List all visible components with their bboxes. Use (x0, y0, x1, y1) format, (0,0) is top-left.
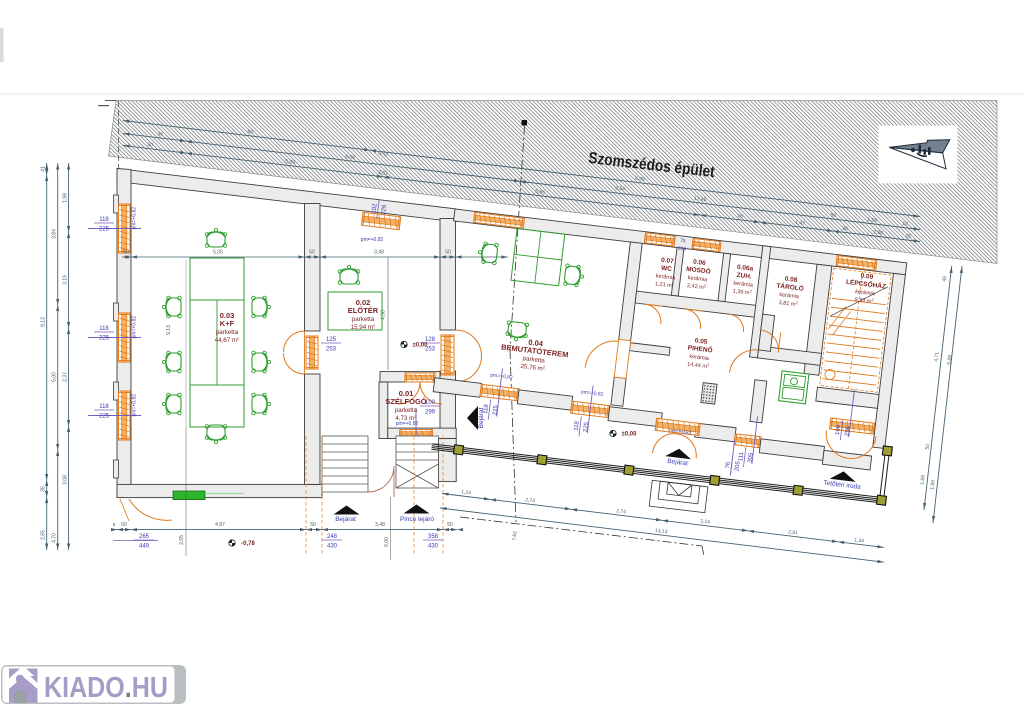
svg-text:parketta: parketta (216, 329, 239, 336)
svg-text:1,68: 1,68 (929, 479, 936, 490)
svg-text:248: 248 (327, 534, 338, 540)
svg-text:4,58: 4,58 (381, 310, 387, 320)
svg-text:5,69: 5,69 (946, 354, 953, 365)
svg-text:3,84: 3,84 (52, 229, 58, 239)
svg-text:4,73 m2: 4,73 m2 (395, 414, 417, 422)
svg-text:2,74: 2,74 (525, 497, 536, 504)
svg-text:pm=+0,82: pm=+0,82 (132, 316, 138, 339)
svg-text:299: 299 (425, 410, 436, 416)
svg-text:3,43: 3,43 (378, 150, 389, 157)
svg-text:205: 205 (734, 460, 741, 471)
svg-text:4,71: 4,71 (933, 351, 940, 362)
svg-text:2,74: 2,74 (616, 508, 627, 515)
svg-text:296: 296 (844, 425, 851, 436)
svg-text:KIADO.HU: KIADO.HU (44, 672, 168, 704)
svg-text:±0,00: ±0,00 (622, 432, 638, 438)
svg-text:41: 41 (41, 166, 47, 172)
svg-text:430: 430 (428, 544, 439, 550)
svg-text:1,69: 1,69 (919, 474, 926, 485)
svg-text:3,08: 3,08 (63, 475, 69, 485)
svg-text:225: 225 (99, 336, 110, 342)
svg-text:SZÉLFOGÓ: SZÉLFOGÓ (385, 397, 426, 406)
svg-text:225: 225 (492, 404, 499, 415)
svg-text:5,00: 5,00 (52, 372, 58, 382)
svg-text:Pince lejáró: Pince lejáró (400, 516, 434, 523)
svg-text:50: 50 (123, 250, 129, 256)
svg-text:pm=+0,82: pm=+0,82 (132, 207, 138, 230)
svg-text:208: 208 (677, 246, 686, 253)
svg-text:4,70: 4,70 (52, 533, 58, 543)
svg-text:253: 253 (326, 347, 337, 353)
svg-text:44,67 m2: 44,67 m2 (215, 336, 240, 344)
svg-text:±0,00: ±0,00 (413, 343, 429, 349)
svg-text:358: 358 (428, 534, 439, 540)
svg-text:50: 50 (830, 212, 836, 219)
svg-text:50: 50 (147, 142, 153, 149)
svg-text:25: 25 (905, 233, 911, 240)
svg-text:pm=+0,82: pm=+0,82 (361, 237, 384, 243)
svg-text:125: 125 (326, 337, 337, 343)
svg-text:parketta: parketta (395, 407, 418, 414)
svg-text:449: 449 (139, 544, 150, 550)
svg-text:50: 50 (309, 250, 315, 256)
svg-text:-0,78: -0,78 (241, 541, 255, 547)
svg-text:2,98: 2,98 (873, 229, 884, 236)
svg-text:Bejárat: Bejárat (335, 516, 356, 523)
svg-text:50: 50 (925, 444, 932, 450)
svg-text:5,09: 5,09 (285, 159, 296, 166)
svg-text:118: 118 (99, 217, 109, 223)
svg-text:48: 48 (942, 276, 949, 282)
svg-text:pm=+0,82: pm=+0,82 (132, 394, 138, 417)
svg-text:9,13: 9,13 (41, 317, 47, 327)
svg-text:36: 36 (842, 226, 848, 233)
svg-text:2,65: 2,65 (179, 535, 185, 545)
svg-text:118: 118 (99, 404, 109, 410)
svg-text:50: 50 (445, 250, 451, 256)
svg-text:3,48: 3,48 (375, 522, 385, 528)
svg-text:5,56: 5,56 (535, 189, 546, 196)
svg-text:4,97: 4,97 (215, 522, 225, 528)
svg-text:5,05: 5,05 (213, 250, 223, 256)
svg-text:225: 225 (99, 414, 110, 420)
svg-text:2,24: 2,24 (700, 519, 711, 526)
svg-text:10: 10 (902, 221, 908, 228)
svg-text:50: 50 (447, 522, 453, 528)
svg-text:1,47: 1,47 (795, 220, 806, 227)
svg-text:6,00: 6,00 (384, 537, 390, 547)
svg-text:225: 225 (583, 421, 590, 432)
svg-text:parketta: parketta (352, 316, 375, 323)
svg-text:225: 225 (99, 227, 110, 233)
svg-text:430: 430 (327, 544, 338, 550)
svg-text:15,94 m2: 15,94 m2 (351, 323, 376, 331)
svg-text:75: 75 (680, 238, 686, 245)
svg-text:ELŐTÉR: ELŐTÉR (348, 306, 379, 315)
svg-text:2,37: 2,37 (63, 372, 69, 382)
svg-text:1,98: 1,98 (63, 193, 69, 203)
svg-text:2,81: 2,81 (788, 529, 799, 536)
svg-text:305: 305 (748, 452, 755, 463)
svg-text:35: 35 (41, 486, 47, 492)
svg-text:3,48: 3,48 (374, 250, 384, 256)
svg-text:50: 50 (121, 522, 127, 528)
svg-text:2,65: 2,65 (41, 530, 47, 540)
svg-text:16: 16 (737, 213, 743, 220)
svg-text:WC: WC (661, 265, 673, 273)
svg-text:50: 50 (310, 522, 316, 528)
svg-text:6,09: 6,09 (345, 154, 356, 161)
svg-text:1,58: 1,58 (867, 217, 878, 224)
svg-text:Bejárat: Bejárat (478, 408, 485, 429)
svg-text:1,24: 1,24 (461, 489, 472, 496)
svg-text:265: 265 (139, 534, 150, 540)
svg-text:7,62: 7,62 (511, 530, 518, 541)
svg-text:9,13: 9,13 (166, 325, 172, 335)
svg-text:118: 118 (99, 326, 109, 332)
svg-text:3,19: 3,19 (63, 275, 69, 285)
svg-text:50: 50 (247, 129, 253, 136)
svg-text:6,09: 6,09 (635, 176, 646, 183)
svg-text:K+F: K+F (220, 319, 235, 328)
svg-text:1,34: 1,34 (854, 537, 865, 544)
svg-text:3,54: 3,54 (615, 185, 626, 192)
svg-text:3,51: 3,51 (378, 170, 389, 177)
svg-text:36: 36 (157, 131, 163, 138)
